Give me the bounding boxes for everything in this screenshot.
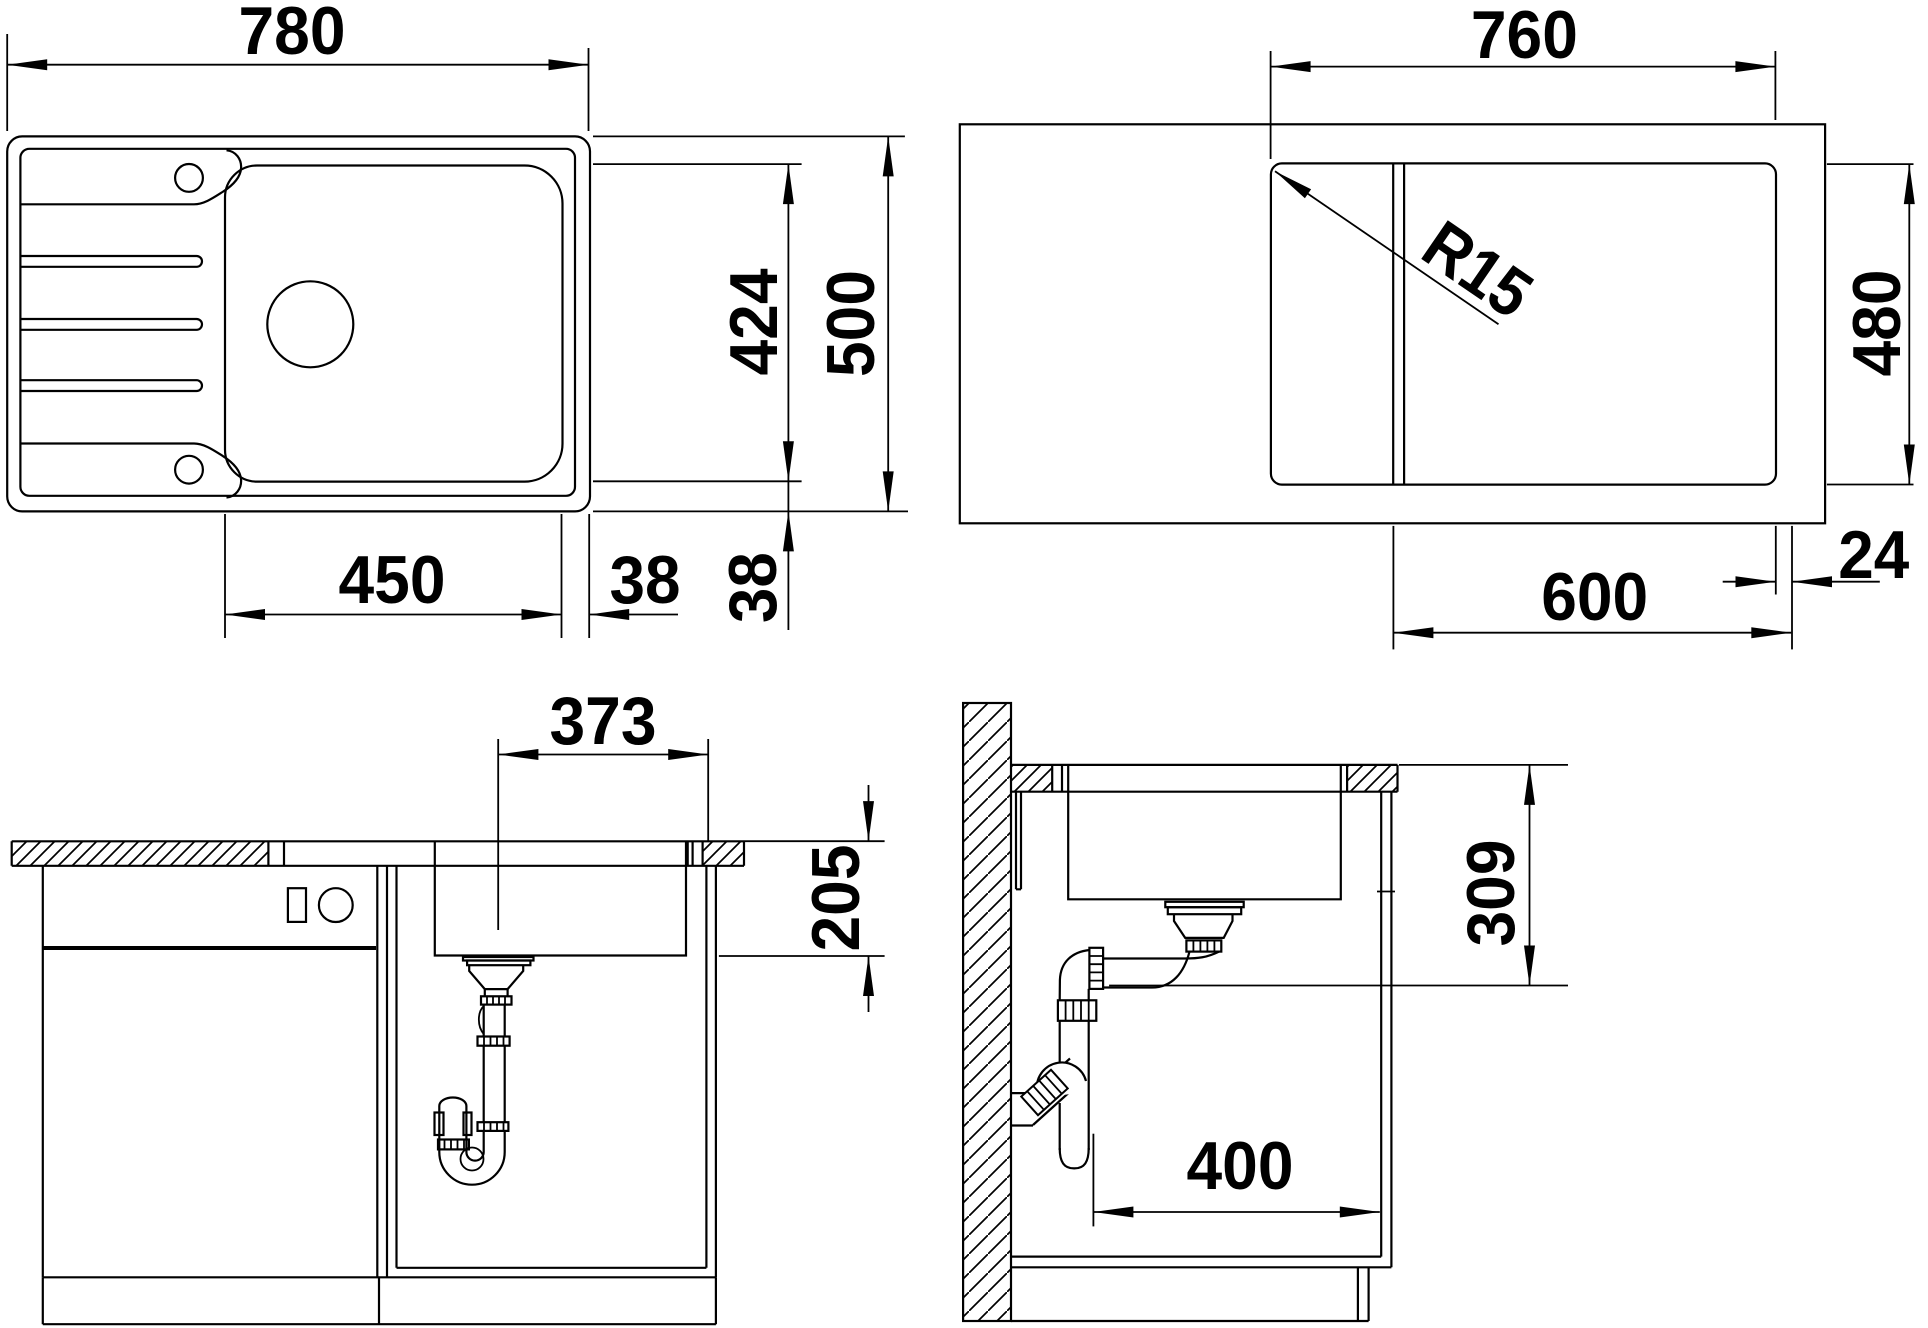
svg-text:760: 760: [1471, 0, 1578, 73]
svg-text:38: 38: [715, 552, 791, 623]
svg-text:38: 38: [610, 542, 681, 618]
svg-text:780: 780: [239, 0, 346, 69]
svg-text:309: 309: [1453, 840, 1529, 947]
svg-text:24: 24: [1838, 517, 1909, 593]
svg-text:205: 205: [798, 845, 874, 952]
svg-text:373: 373: [550, 683, 657, 759]
svg-text:480: 480: [1839, 270, 1915, 377]
svg-text:424: 424: [716, 268, 792, 375]
svg-text:400: 400: [1187, 1128, 1294, 1204]
svg-text:500: 500: [813, 270, 889, 377]
svg-text:450: 450: [339, 542, 446, 618]
svg-text:600: 600: [1541, 559, 1648, 635]
